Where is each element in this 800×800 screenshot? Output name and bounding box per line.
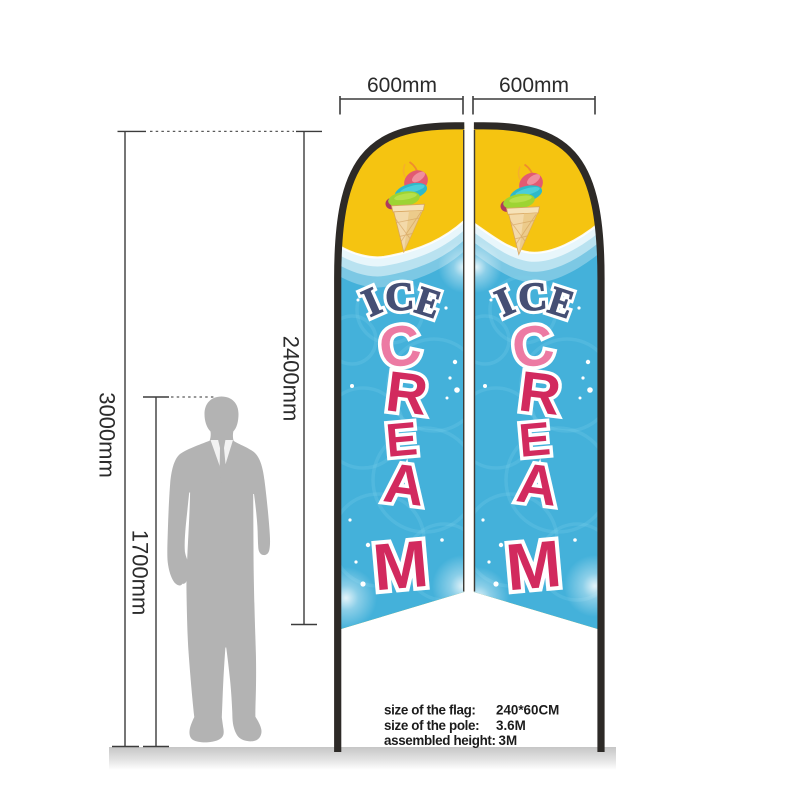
svg-text:600mm: 600mm [367, 74, 437, 97]
svg-text:size of the pole:: size of the pole: [384, 718, 479, 733]
svg-text:1700mm: 1700mm [128, 530, 153, 616]
svg-text:600mm: 600mm [499, 74, 569, 97]
svg-text:3M: 3M [499, 733, 518, 748]
svg-text:size of the flag:: size of the flag: [384, 703, 476, 718]
svg-text:assembled height:: assembled height: [384, 733, 496, 748]
svg-text:2400mm: 2400mm [279, 336, 304, 422]
svg-text:3000mm: 3000mm [95, 392, 120, 478]
svg-text:240*60CM: 240*60CM [496, 703, 559, 718]
svg-text:3.6M: 3.6M [496, 718, 526, 733]
svg-text:A: A [380, 450, 428, 517]
svg-text:M: M [503, 526, 564, 605]
svg-text:M: M [370, 526, 431, 605]
svg-text:A: A [513, 450, 561, 517]
